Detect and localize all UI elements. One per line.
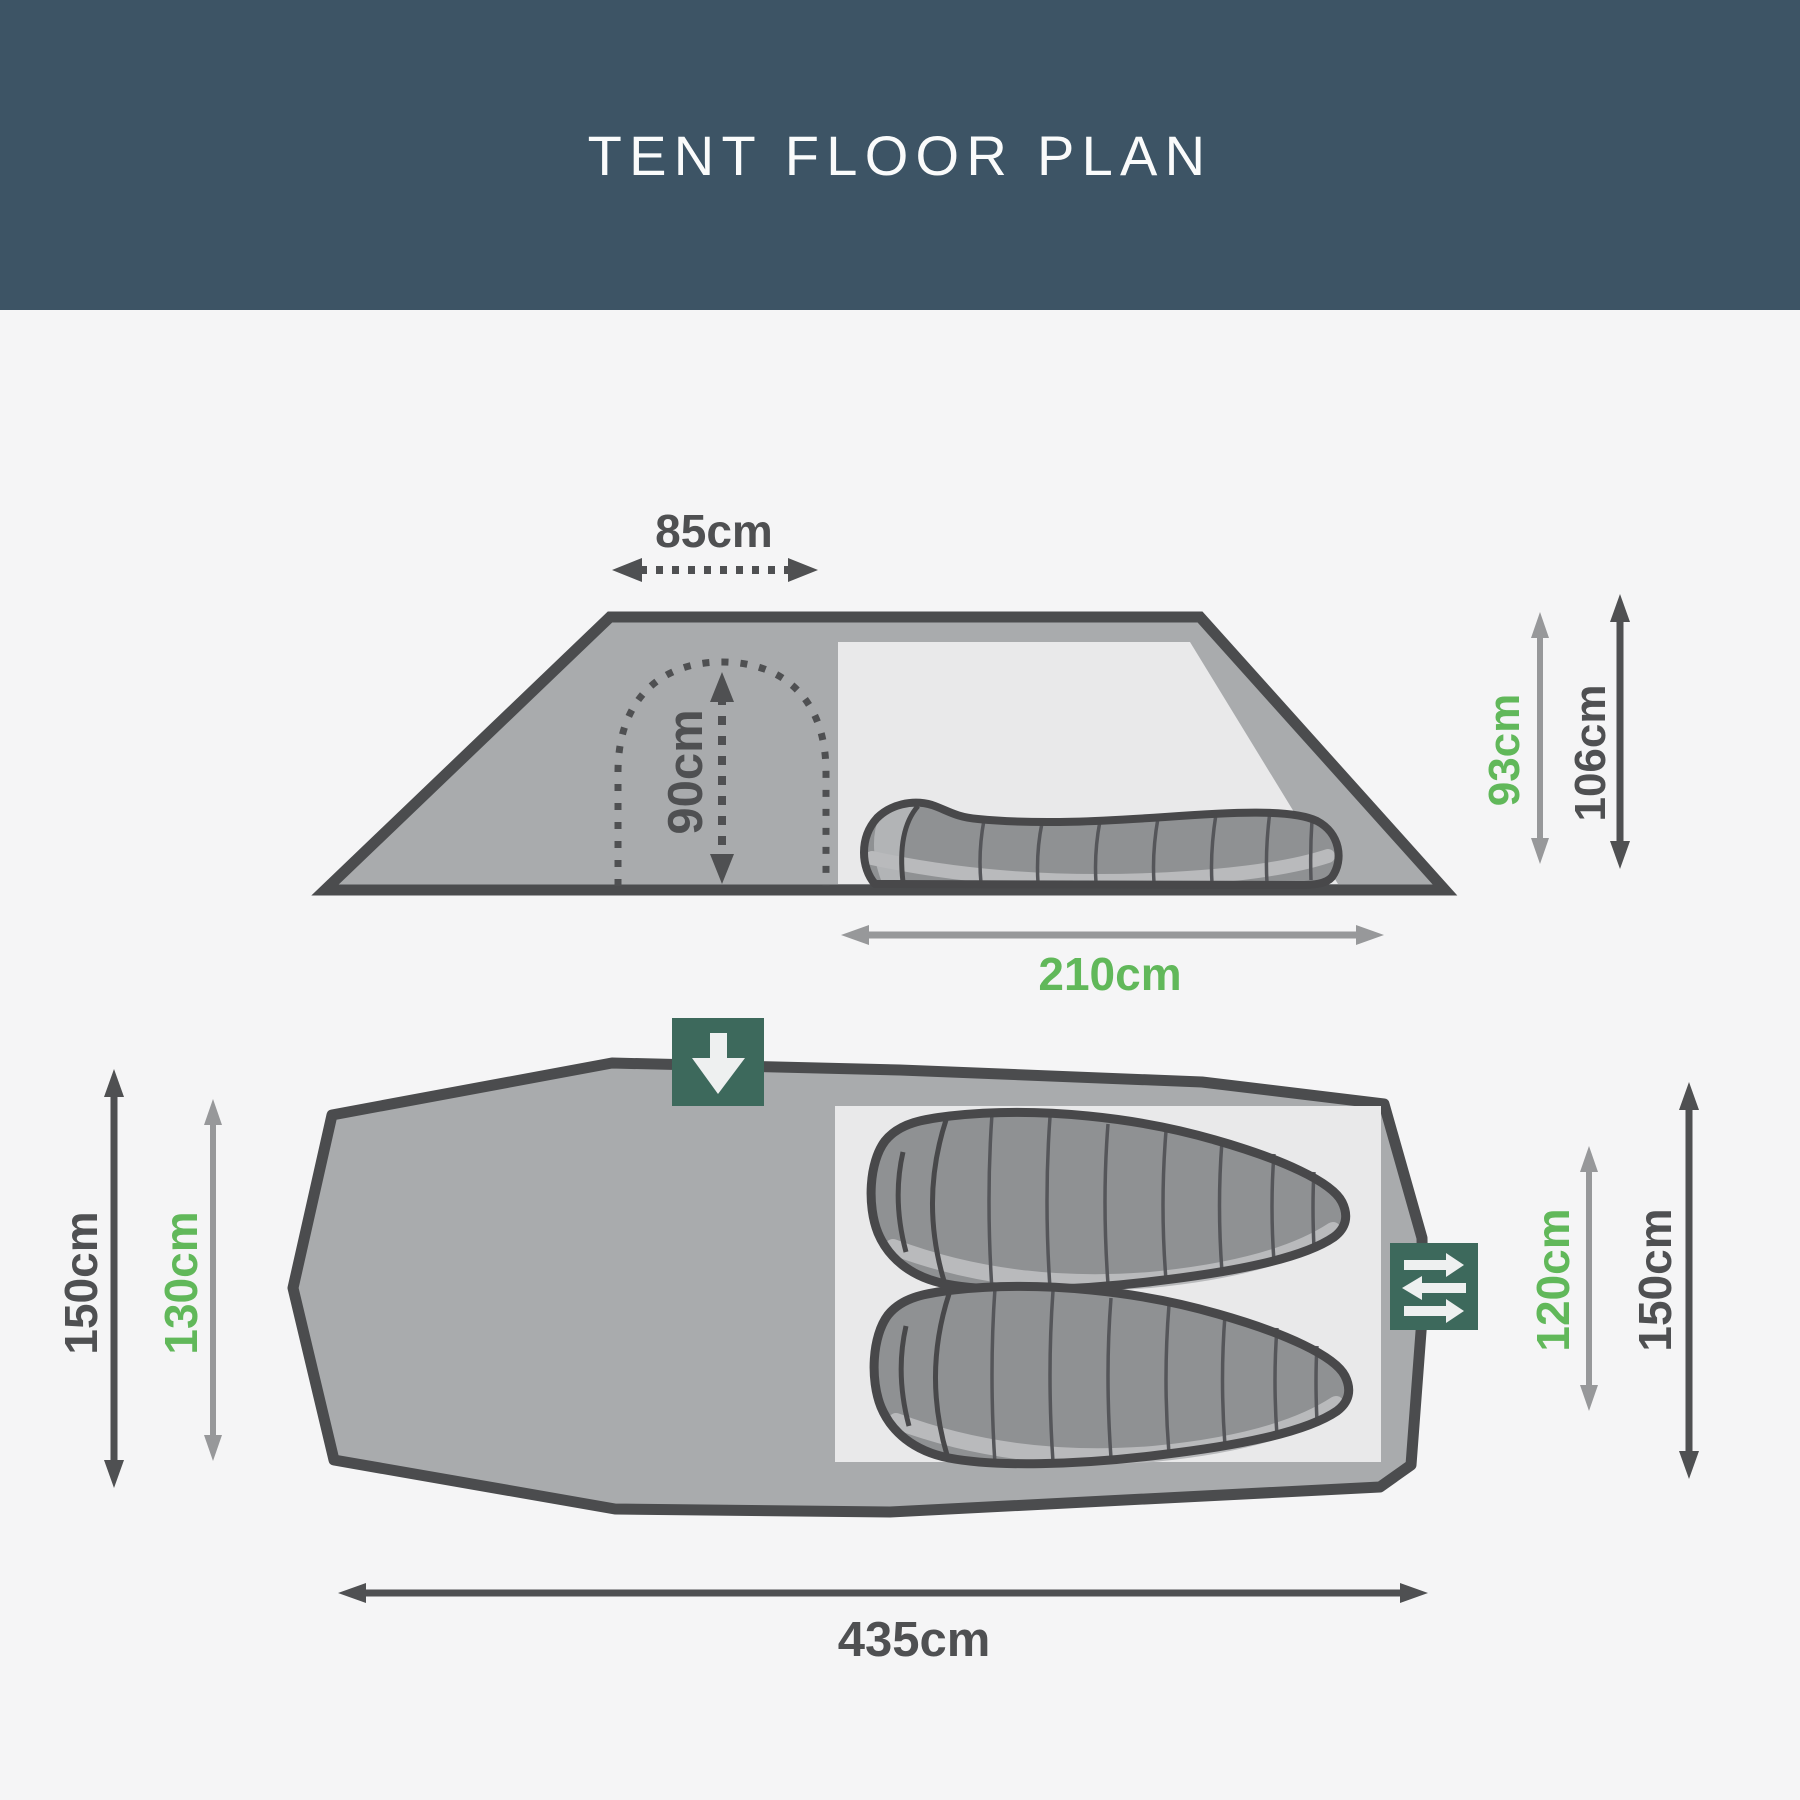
dim-label-door-width-right: 120cm: [1526, 1208, 1580, 1351]
tent-floor-plan-infographic: TENT FLOOR PLAN: [0, 0, 1800, 1800]
dim-label-top-width: 85cm: [655, 504, 773, 558]
dim-arrow-inner-height: [1531, 612, 1549, 864]
dim-label-outer-width-right: 150cm: [1628, 1208, 1682, 1351]
diagram-canvas: [0, 0, 1800, 1800]
side-view-diagram: [325, 617, 1445, 890]
dim-label-outer-height: 106cm: [1566, 684, 1616, 821]
dim-label-outer-width-left: 150cm: [54, 1211, 108, 1354]
transfer-arrows-icon: [1402, 1253, 1466, 1323]
dim-label-outer-length: 435cm: [838, 1612, 991, 1668]
dim-label-inner-width-left: 130cm: [154, 1211, 208, 1354]
front-door-icon: [672, 1018, 764, 1106]
dim-label-inner-height: 93cm: [1480, 694, 1530, 807]
dim-arrow-top-width: [612, 558, 818, 582]
top-view-diagram: [293, 1018, 1478, 1512]
dim-arrow-door-width-right: [1580, 1146, 1598, 1411]
dim-arrow-outer-width-right: [1679, 1082, 1699, 1479]
side-door-icon: [1390, 1243, 1478, 1330]
dim-arrow-inner-length: [841, 925, 1384, 945]
dim-label-inner-length: 210cm: [1038, 947, 1181, 1001]
dim-label-door-height: 90cm: [658, 709, 714, 834]
dim-arrow-outer-length: [338, 1583, 1428, 1603]
